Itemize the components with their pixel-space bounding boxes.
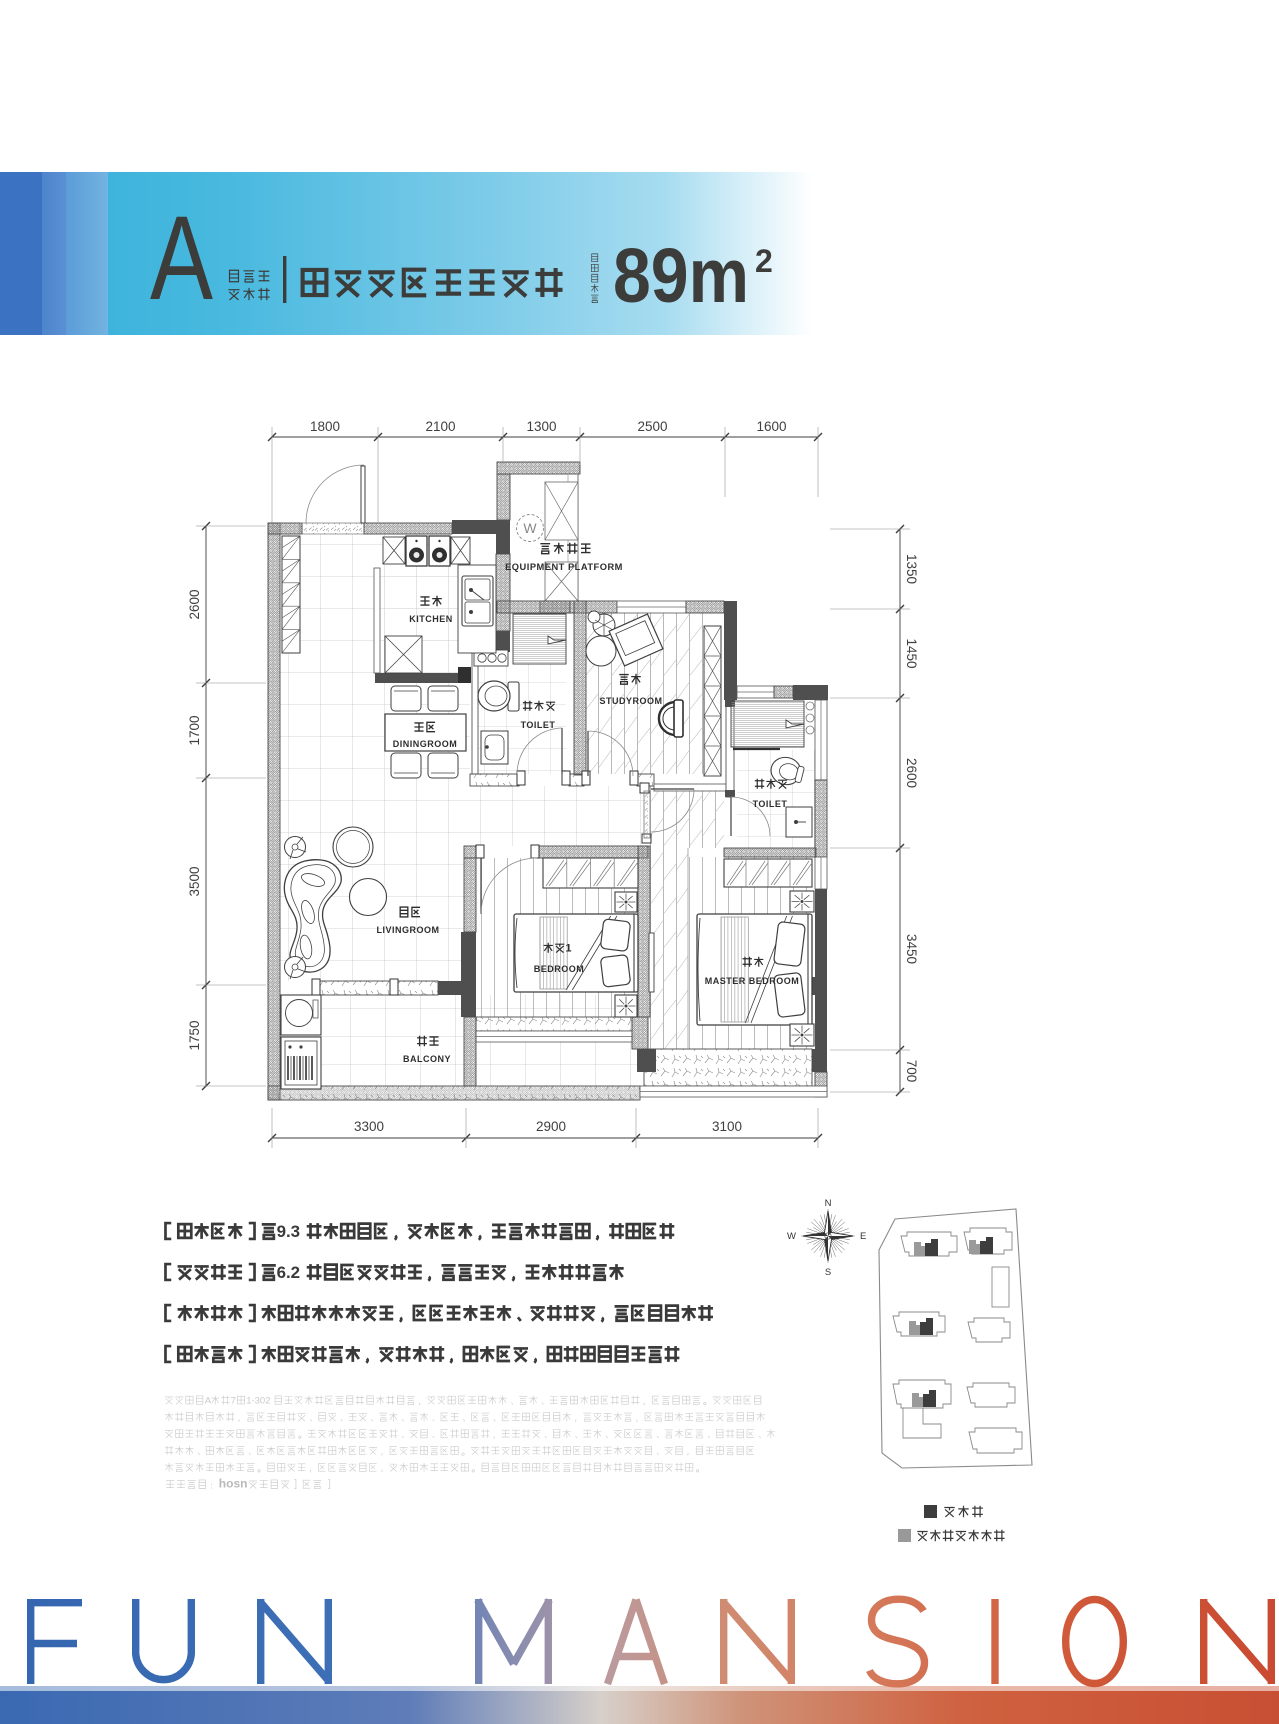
svg-text:2900: 2900 <box>536 1119 566 1134</box>
svg-text:1750: 1750 <box>187 1020 202 1050</box>
svg-text:1: 1 <box>566 942 572 954</box>
svg-text:hosn: hosn <box>219 1477 248 1491</box>
svg-text:1300: 1300 <box>526 419 556 434</box>
svg-text:W: W <box>523 520 537 536</box>
svg-text:W: W <box>787 1231 796 1242</box>
svg-text:3500: 3500 <box>187 866 202 896</box>
svg-text:STUDYROOM: STUDYROOM <box>600 696 663 706</box>
svg-text:KITCHEN: KITCHEN <box>409 614 453 624</box>
svg-text:9.3: 9.3 <box>277 1222 300 1241</box>
svg-text:2: 2 <box>755 243 773 279</box>
svg-text:EQUIPMENT PLATFORM: EQUIPMENT PLATFORM <box>505 562 623 572</box>
svg-text:1450: 1450 <box>904 638 919 668</box>
svg-text:3300: 3300 <box>354 1119 384 1134</box>
svg-text:BALCONY: BALCONY <box>403 1054 451 1064</box>
svg-text:2500: 2500 <box>637 419 667 434</box>
svg-text:2600: 2600 <box>904 758 919 788</box>
svg-text:S: S <box>825 1267 831 1278</box>
svg-text:2100: 2100 <box>425 419 455 434</box>
svg-text:3450: 3450 <box>904 934 919 964</box>
svg-text:TOILET: TOILET <box>753 799 788 809</box>
svg-text:DININGROOM: DININGROOM <box>393 739 458 749</box>
svg-text:2600: 2600 <box>187 589 202 619</box>
svg-text:1350: 1350 <box>904 554 919 584</box>
svg-text:1600: 1600 <box>756 419 786 434</box>
svg-text:BEDROOM: BEDROOM <box>534 964 585 974</box>
svg-text:89m: 89m <box>613 233 749 319</box>
svg-text:1800: 1800 <box>310 419 340 434</box>
svg-text:7: 7 <box>231 1395 236 1406</box>
svg-text:A: A <box>150 191 213 325</box>
svg-text:LIVINGROOM: LIVINGROOM <box>377 925 440 935</box>
svg-text:A: A <box>205 1395 212 1406</box>
svg-text:3100: 3100 <box>712 1119 742 1134</box>
svg-text:700: 700 <box>904 1060 919 1083</box>
svg-text:6.2: 6.2 <box>277 1263 300 1282</box>
svg-text:MASTER BEDROOM: MASTER BEDROOM <box>705 976 800 986</box>
svg-text:1-302: 1-302 <box>246 1395 270 1406</box>
svg-text:TOILET: TOILET <box>521 720 556 730</box>
svg-text:E: E <box>860 1231 866 1242</box>
svg-text:N: N <box>825 1198 832 1209</box>
svg-text:1700: 1700 <box>187 715 202 745</box>
